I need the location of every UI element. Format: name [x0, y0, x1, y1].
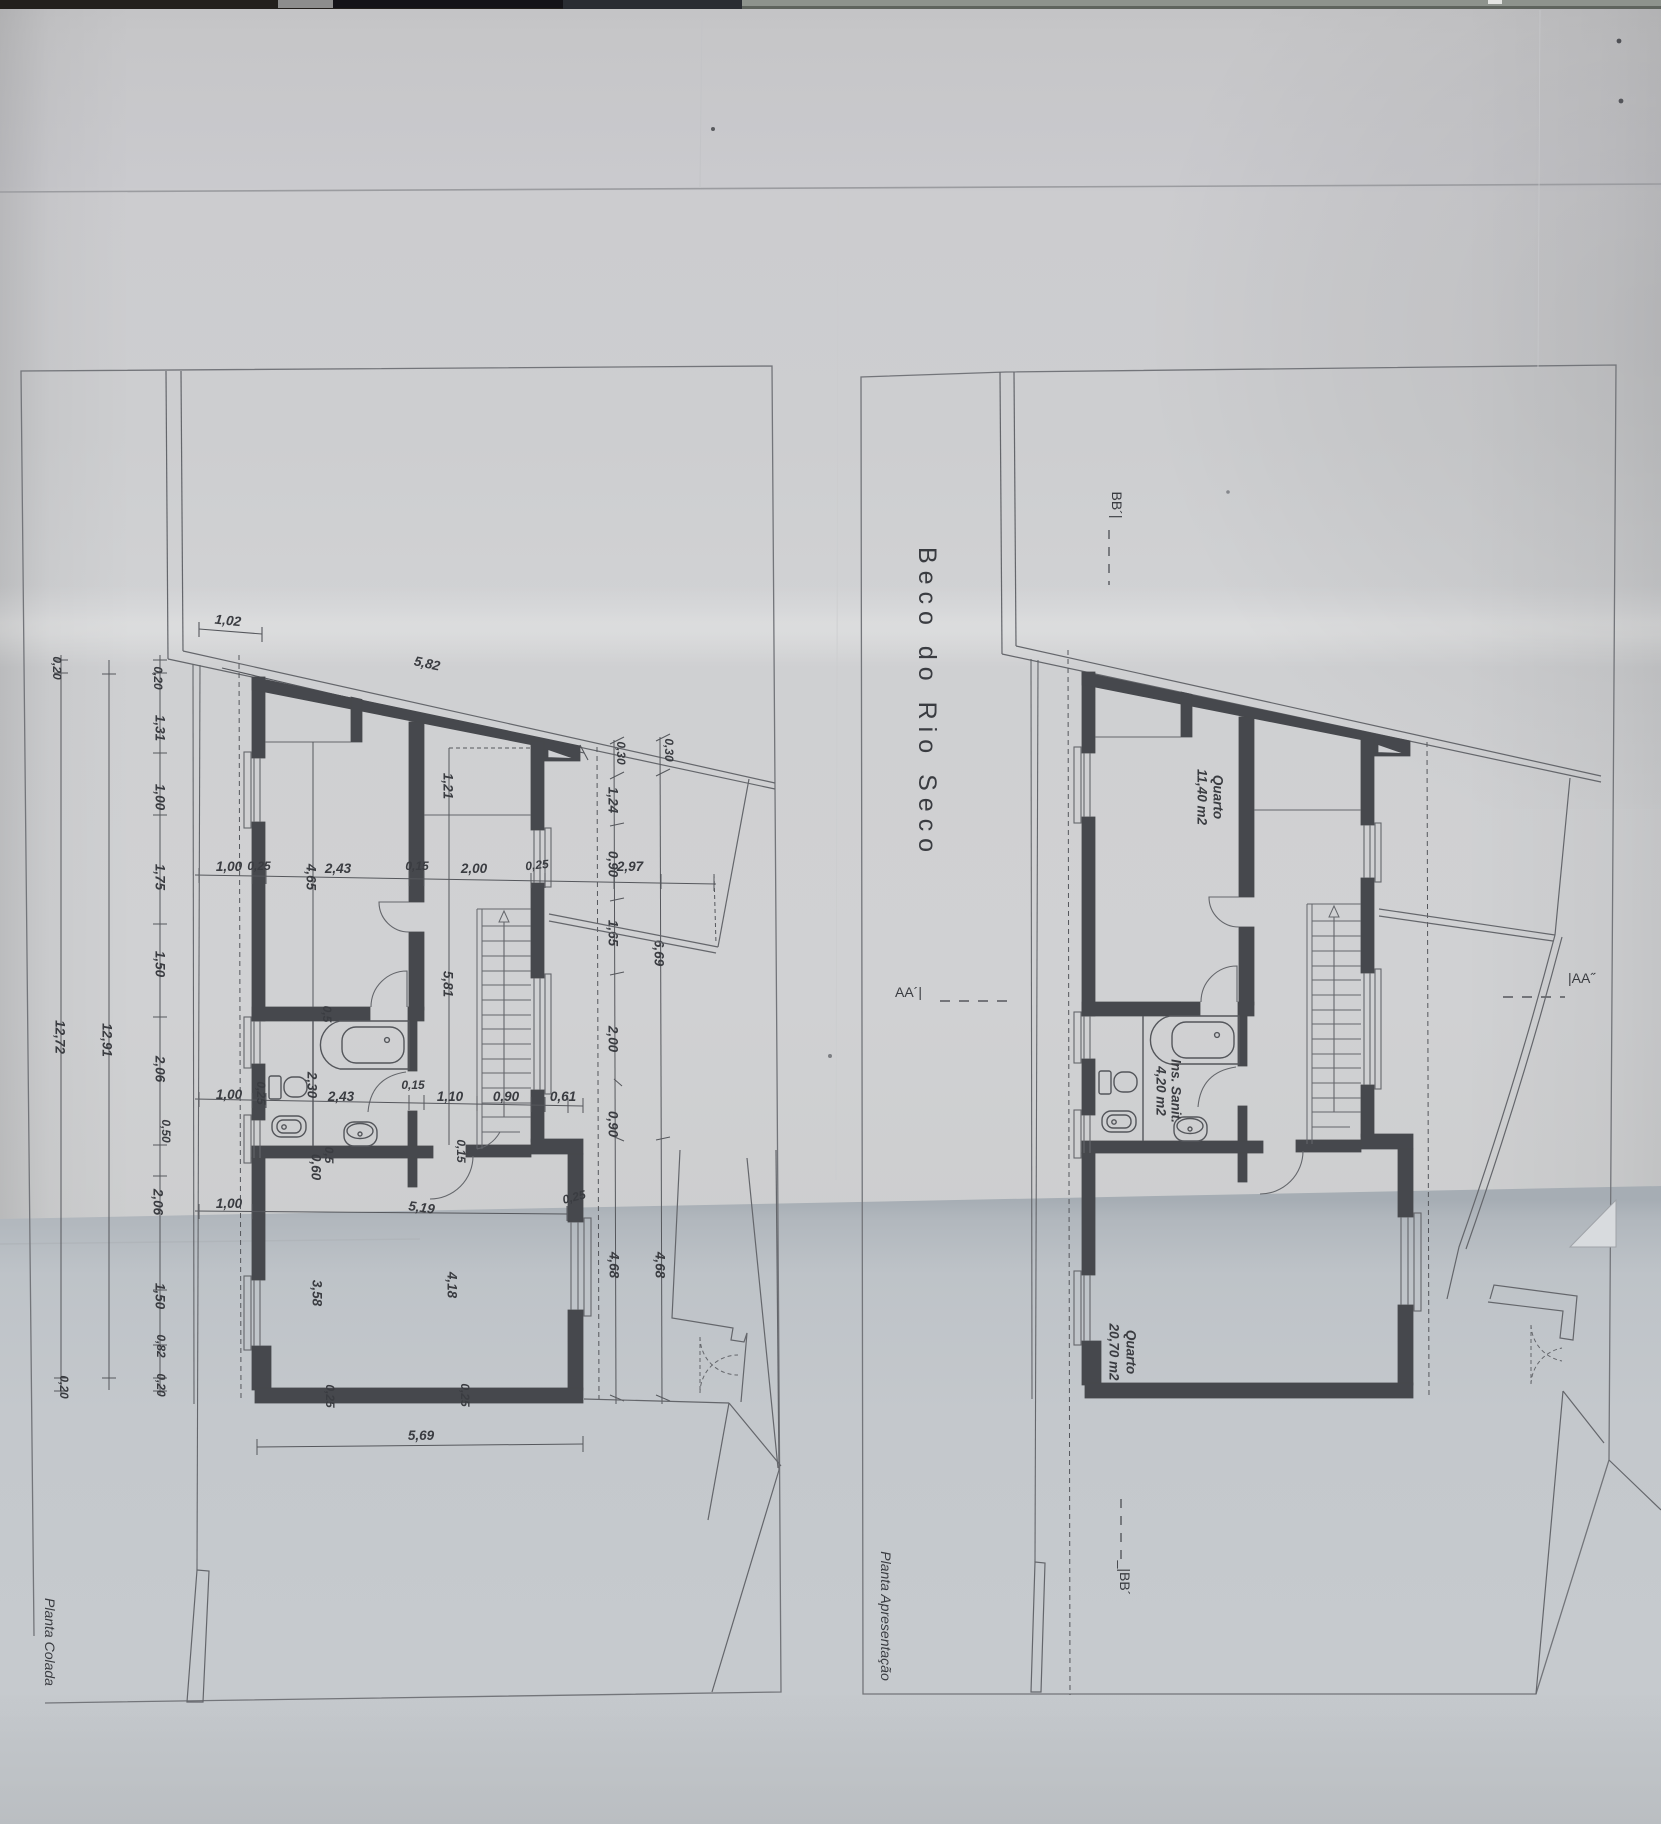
- svg-text:1,24: 1,24: [606, 787, 621, 814]
- svg-text:0,20: 0,20: [50, 656, 64, 680]
- svg-text:0,5: 0,5: [320, 1006, 334, 1023]
- svg-text:0,90: 0,90: [493, 1089, 520, 1104]
- svg-text:1,10: 1,10: [437, 1089, 464, 1104]
- svg-text:1,00: 1,00: [216, 1196, 243, 1211]
- svg-text:5,81: 5,81: [441, 971, 456, 997]
- svg-text:0,20: 0,20: [57, 1375, 71, 1399]
- svg-text:0,20: 0,20: [154, 1373, 168, 1397]
- svg-text:6,69: 6,69: [652, 940, 667, 967]
- svg-text:0,25: 0,25: [254, 1081, 268, 1105]
- svg-text:0,90: 0,90: [606, 1111, 621, 1138]
- svg-text:4,68: 4,68: [607, 1251, 622, 1279]
- svg-text:0,50: 0,50: [159, 1119, 173, 1143]
- svg-text:|AA˝: |AA˝: [1568, 970, 1596, 986]
- svg-text:0,15: 0,15: [405, 859, 429, 873]
- svg-text:_|BB´: _|BB´: [1117, 1560, 1133, 1596]
- svg-text:4,65: 4,65: [304, 863, 319, 891]
- svg-text:0,25: 0,25: [458, 1383, 472, 1407]
- svg-text:1,75: 1,75: [153, 864, 168, 891]
- svg-text:Ins. Sanit.: Ins. Sanit.: [1169, 1059, 1184, 1123]
- svg-text:12,72: 12,72: [53, 1020, 68, 1054]
- svg-text:0,25: 0,25: [247, 859, 271, 873]
- svg-text:4,20 m2: 4,20 m2: [1154, 1065, 1169, 1116]
- svg-text:2,43: 2,43: [327, 1089, 355, 1104]
- svg-text:0,25: 0,25: [323, 1384, 337, 1408]
- svg-text:2,43: 2,43: [324, 861, 352, 876]
- svg-text:0,15: 0,15: [454, 1139, 468, 1163]
- svg-text:Planta Colada: Planta Colada: [42, 1598, 58, 1686]
- svg-text:2,06: 2,06: [151, 1188, 166, 1216]
- svg-text:4,18: 4,18: [445, 1271, 460, 1299]
- svg-text:3,58: 3,58: [310, 1280, 325, 1307]
- svg-text:Beco do Rio Seco: Beco do Rio Seco: [913, 547, 941, 859]
- svg-text:11,40 m2: 11,40 m2: [1195, 769, 1210, 826]
- svg-text:0,60: 0,60: [309, 1154, 324, 1181]
- svg-text:Quarto: Quarto: [1124, 1330, 1139, 1374]
- svg-text:1,50: 1,50: [153, 1283, 168, 1310]
- svg-text:1,00: 1,00: [216, 859, 243, 874]
- svg-text:20,70 m2: 20,70 m2: [1107, 1322, 1122, 1381]
- svg-text:Planta Apresentação: Planta Apresentação: [878, 1551, 894, 1681]
- svg-text:0,61: 0,61: [550, 1089, 576, 1104]
- svg-text:1,02: 1,02: [214, 612, 242, 630]
- svg-text:0,90: 0,90: [606, 851, 621, 878]
- svg-text:0,5: 0,5: [322, 1147, 336, 1164]
- svg-text:0,25: 0,25: [525, 857, 550, 873]
- svg-text:1,00: 1,00: [153, 784, 168, 811]
- svg-text:5,69: 5,69: [408, 1428, 435, 1443]
- svg-text:0,30: 0,30: [662, 738, 676, 762]
- svg-text:AA´|: AA´|: [895, 984, 922, 1000]
- svg-text:1,21: 1,21: [441, 773, 456, 799]
- svg-text:BB´|: BB´|: [1109, 492, 1125, 519]
- svg-text:2,00: 2,00: [460, 861, 488, 876]
- svg-text:4,68: 4,68: [653, 1251, 668, 1279]
- svg-text:2,00: 2,00: [606, 1025, 621, 1053]
- svg-text:1,00: 1,00: [216, 1087, 243, 1102]
- svg-text:Quarto: Quarto: [1211, 775, 1226, 819]
- svg-text:2,30: 2,30: [305, 1071, 320, 1099]
- svg-text:0,20: 0,20: [151, 666, 165, 690]
- svg-text:1,50: 1,50: [153, 951, 168, 978]
- svg-text:1,31: 1,31: [153, 715, 168, 741]
- svg-text:2,06: 2,06: [153, 1055, 168, 1083]
- svg-text:0,82: 0,82: [154, 1334, 168, 1358]
- svg-text:0,15: 0,15: [401, 1078, 425, 1092]
- svg-text:0,30: 0,30: [614, 741, 628, 765]
- svg-text:12,91: 12,91: [100, 1023, 115, 1057]
